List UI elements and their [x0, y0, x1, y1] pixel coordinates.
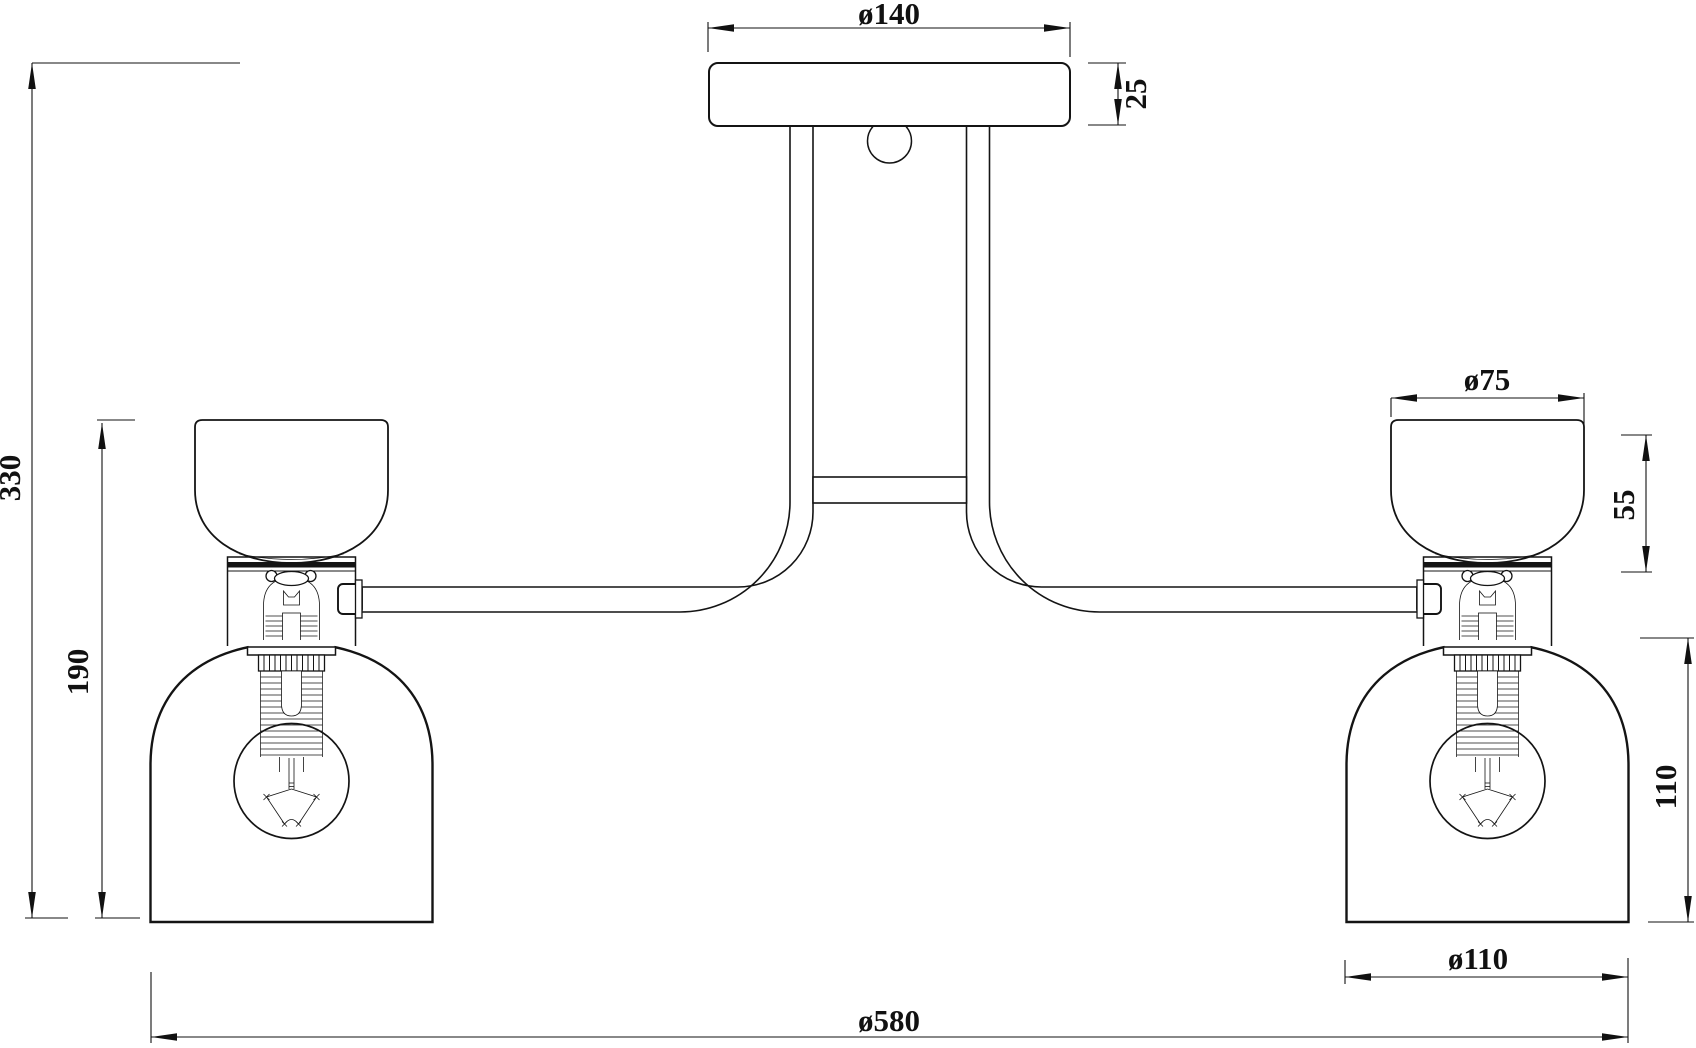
dim-lamp-assembly-height: 190 — [60, 649, 95, 696]
dim-cup-height: 55 — [1606, 490, 1641, 521]
dimensions: ø140 25 330 190 ø75 55 110 ø110 ø580 — [0, 0, 1694, 1043]
arm-right-outer — [990, 126, 1424, 612]
arms — [356, 126, 1423, 612]
nut-plate-left — [356, 580, 363, 618]
dim-shade-diameter: ø110 — [1448, 941, 1508, 976]
dimension-lines — [32, 28, 1688, 1037]
arm-right-inner — [967, 126, 1424, 587]
nut-plate-right — [1417, 580, 1424, 618]
dim-cup-diameter: ø75 — [1464, 362, 1511, 397]
dim-shade-height: 110 — [1648, 765, 1683, 810]
dim-canopy-height: 25 — [1118, 79, 1153, 110]
crossbar — [813, 477, 967, 503]
fixture-technical-drawing: ø140 25 330 190 ø75 55 110 ø110 ø580 — [0, 0, 1696, 1048]
ceiling-canopy — [709, 63, 1070, 126]
arm-left-outer — [356, 126, 790, 612]
arm-left-inner — [356, 126, 813, 587]
arrowheads — [28, 24, 1692, 1041]
lamp-left — [151, 420, 433, 922]
dim-overall-height: 330 — [0, 455, 27, 502]
drawing-canvas: ø140 25 330 190 ø75 55 110 ø110 ø580 — [0, 0, 1696, 1048]
dim-overall-width: ø580 — [858, 1003, 920, 1038]
extension-lines — [25, 22, 1694, 1043]
lamp-right — [1347, 420, 1629, 922]
dim-canopy-diameter: ø140 — [858, 0, 920, 31]
